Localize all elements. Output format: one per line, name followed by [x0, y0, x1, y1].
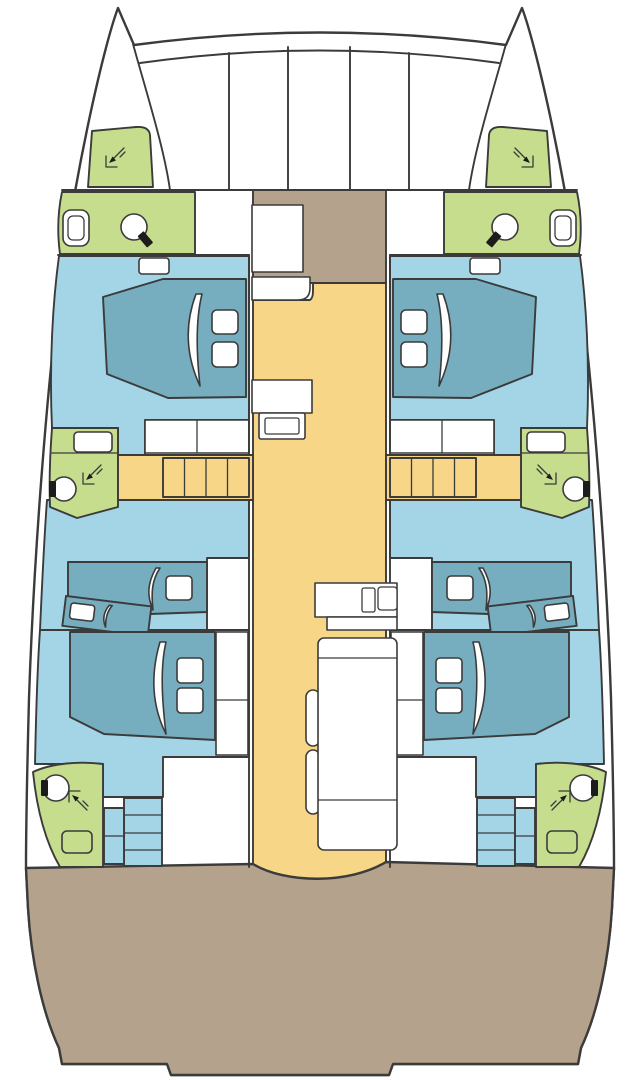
foredeck-step: [252, 277, 310, 300]
galley-sink: [378, 587, 397, 610]
catamaran-deck-plan: [0, 0, 639, 1080]
galley-sink: [362, 588, 375, 612]
aft-cockpit: [26, 862, 614, 1075]
settee: [318, 638, 397, 850]
plan-root: [26, 8, 614, 1075]
galley-shelf: [327, 617, 397, 630]
foredeck-seat: [252, 205, 303, 272]
nav-station-desk: [252, 380, 312, 413]
